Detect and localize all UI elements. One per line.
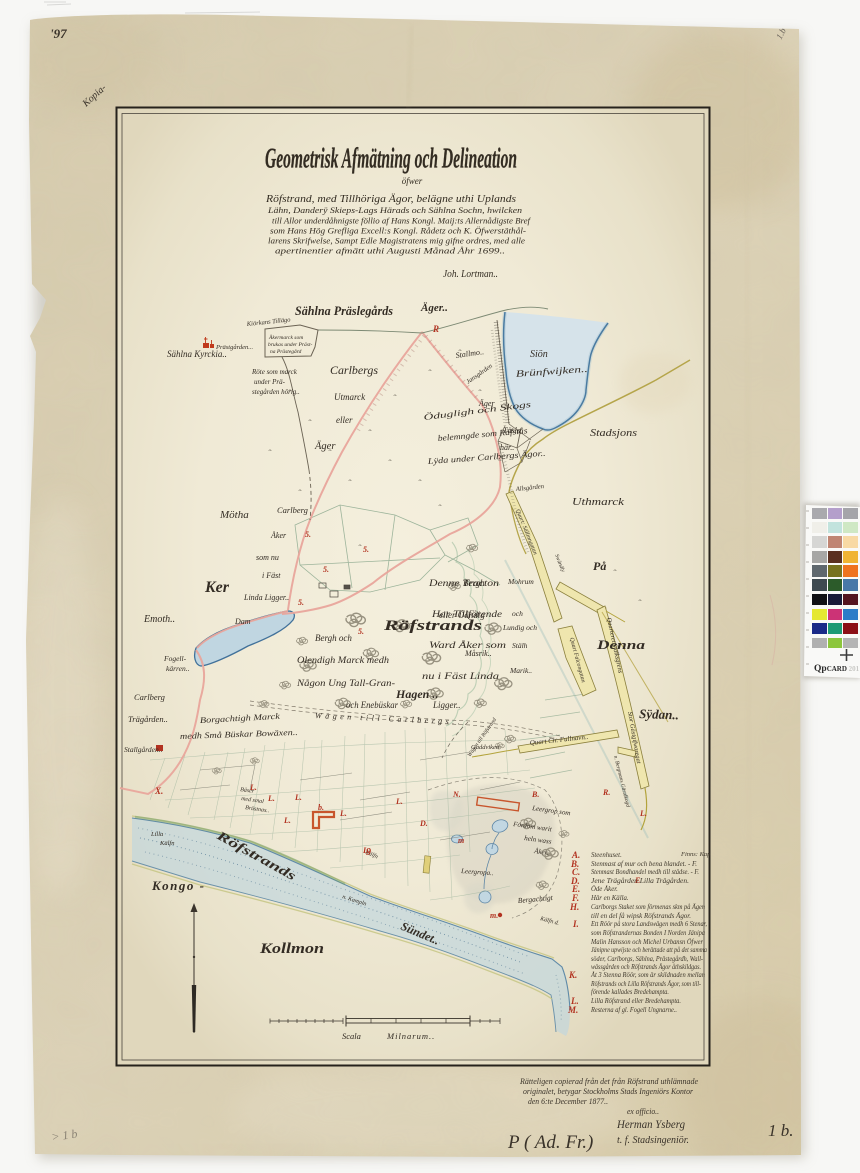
svg-text:R.: R. [602,788,610,797]
svg-text:ex officio..: ex officio.. [627,1107,659,1116]
svg-text:L.: L. [339,809,347,818]
svg-text:Stenmast af mur och bena bland: Stenmast af mur och bena blandet. - F. [591,861,697,868]
svg-text:Scala: Scala [342,1031,361,1041]
svg-text:Carlbergs: Carlbergs [330,365,379,377]
svg-text:Jene Trägården Lilla Trägår: Jene Trägården Lilla Trägården. [591,878,689,885]
svg-text:Fogell-: Fogell- [163,654,187,663]
svg-text:Herman Ysberg: Herman Ysberg [616,1117,685,1131]
svg-text:stegården hörig..: stegården hörig.. [252,388,300,396]
svg-text:Milnarum..: Milnarum.. [386,1031,435,1041]
svg-text:Kälfn: Kälfn [159,840,174,847]
svg-text:Kongo -: Kongo - [151,878,205,893]
svg-text:Äger: Äger [478,399,495,408]
svg-text:Olendigh Marck medh: Olendigh Marck medh [297,655,390,665]
svg-text:R: R [432,324,439,334]
svg-text:till en del få wipsk Röfstrand: till en del få wipsk Röfstrands Ägor. [591,913,691,920]
svg-text:m.: m. [490,911,498,920]
svg-text:Ker: Ker [204,579,230,596]
svg-text:Ett Röör på stora Landswägen m: Ett Röör på stora Landswägen medh 6 Sten… [590,921,707,928]
svg-text:Åkermarck som: Åkermarck som [268,333,303,341]
svg-text:Åt 3 Stenna Röör, som är skild: Åt 3 Stenna Röör, som är skildnaden mell… [590,971,706,979]
svg-text:N.: N. [452,790,461,799]
svg-text:till Allor underdåhnigste föll: till Allor underdåhnigste föllio af Hans… [272,217,532,226]
svg-text:Bergh och: Bergh och [315,633,352,643]
svg-text:Mohrum: Mohrum [507,577,534,586]
svg-text:Uthmarck: Uthmarck [572,497,624,508]
svg-text:Resterna af gl. Fogell Ungnarn: Resterna af gl. Fogell Ungnarne.. [590,1007,677,1014]
svg-text:5.: 5. [305,530,311,539]
svg-text:9: 9 [366,847,371,858]
svg-text:Lundig och: Lundig och [502,623,537,632]
svg-text:Röfstrand, med Tillhöriga Ägor: Röfstrand, med Tillhöriga Ägor, belägne … [265,193,516,205]
svg-text:Röfstrands: Röfstrands [383,618,483,634]
svg-text:brukas under Präst-: brukas under Präst- [268,342,312,348]
svg-text:i Fäst: i Fäst [262,571,281,580]
svg-text:Siön: Siön [530,349,548,360]
svg-text:1 b.: 1 b. [768,1121,794,1140]
svg-text:den 6:te December 1877..: den 6:te December 1877.. [528,1097,608,1106]
svg-text:nu i Fäst Linda: nu i Fäst Linda [422,671,500,681]
svg-text:Trägården..: Trägården.. [128,714,168,724]
svg-text:Äger..: Äger.. [420,301,448,314]
svg-text:söder, Carlborgs, Sählna, Präs: söder, Carlborgs, Sählna, Prästegårdh, W… [591,956,704,963]
svg-text:På: På [593,559,606,573]
svg-text:Ligger..: Ligger.. [432,700,461,710]
svg-text:Lähn, Danderÿ Skieps-Lags Hära: Lähn, Danderÿ Skieps-Lags Härads och Säh… [267,205,522,215]
svg-text:Rätteligen copierad från det f: Rätteligen copierad från det från Röfstr… [519,1077,698,1086]
svg-text:som Röfstrandernas Bonden I No: som Röfstrandernas Bonden I Norden Jänip… [591,930,706,937]
svg-text:Hagen ..: Hagen .. [395,687,438,701]
svg-text:Linda Ligger..: Linda Ligger.. [243,593,289,602]
svg-text:L.: L. [639,809,647,818]
svg-text:eller: eller [336,415,353,425]
svg-text:Mötha: Mötha [219,509,249,521]
svg-text:Här en Källa.: Här en Källa. [590,895,629,902]
svg-text:m: m [458,836,464,845]
svg-text:Carlberg: Carlberg [277,505,308,515]
svg-text:'97: '97 [50,26,67,41]
svg-text:förende kallades Bredehampta.: förende kallades Bredehampta. [591,989,669,996]
svg-text:Stenmast Bondhandel medh till: Stenmast Bondhandel medh till städse. - … [591,869,699,876]
svg-text:L.: L. [283,816,291,825]
svg-text:K.: K. [568,970,577,980]
svg-text:Malin Hansson och Michel Urban: Malin Hansson och Michel Urbansn Öfwer [590,938,703,946]
svg-text:och Enebüskar: och Enebüskar [346,700,398,710]
svg-text:som nu: som nu [256,553,279,562]
svg-text:5.: 5. [323,565,329,574]
svg-text:här..: här.. [500,443,514,452]
svg-text:Denna: Denna [596,637,646,652]
svg-text:Steenhuset.: Steenhuset. [591,852,622,859]
svg-text:Dam: Dam [234,617,251,626]
svg-text:X.: X. [154,786,163,796]
svg-text:L.: L. [267,794,275,803]
svg-text:Emoth..: Emoth.. [143,614,175,625]
svg-text:Måsrik..: Måsrik.. [464,649,492,658]
svg-text:b.: b. [318,803,324,812]
svg-text:Äger: Äger [314,440,336,452]
svg-text:som Hans Hög Grefliga Excell:s: som Hans Hög Grefliga Excell:s Kongl. Rå… [270,227,526,236]
svg-text:Öde Åker.: Öde Åker. [591,885,618,893]
svg-text:Stadsjons: Stadsjons [590,428,637,439]
svg-text:Jänipne upwijste och berättade: Jänipne upwijste och berättade att på de… [591,947,708,954]
svg-text:I.: I. [572,919,579,929]
svg-text:Lilla Röfstrand eller Bredeham: Lilla Röfstrand eller Bredehampta. [590,998,681,1005]
svg-text:Joh. Lortman..: Joh. Lortman.. [443,269,498,280]
svg-text:eller Öändig: eller Öändig [439,610,485,620]
svg-text:Åker: Åker [270,531,287,540]
svg-text:Sählna Präslegårds: Sählna Präslegårds [295,303,393,318]
svg-text:Täsla: Täsla [503,426,521,435]
svg-text:öfwer: öfwer [402,176,423,186]
svg-text:Sÿdan..: Sÿdan.. [639,706,679,722]
svg-text:kärren..: kärren.. [166,664,190,673]
svg-text:L.: L. [294,793,302,802]
svg-text:B.: B. [531,790,539,799]
svg-text:M.: M. [567,1005,578,1015]
svg-text:wässgården och Röfstrands Ägor: wässgården och Röfstrands Ägor åthskildg… [591,964,701,971]
svg-text:apertinentier afmätt uthi Augu: apertinentier afmätt uthi Augusti Månad … [275,247,505,256]
svg-text:originalet, betygar Stockholms: originalet, betygar Stockholms Stads Ing… [523,1087,694,1096]
svg-text:Kollmon: Kollmon [259,941,324,957]
svg-text:5.: 5. [358,627,364,636]
svg-text:och: och [512,609,523,618]
svg-text:Marik..: Marik.. [509,666,532,675]
svg-text:na Prästegård: na Prästegård [270,348,302,355]
svg-text:Geometrisk Afmätning och Delin: Geometrisk Afmätning och Delineation [265,144,517,175]
svg-text:Bergh: Bergh [463,578,485,588]
svg-text:Röte som marck: Röte som marck [251,368,298,376]
svg-text:5.: 5. [363,545,369,554]
svg-text:Carlborgs Staket som förmenas: Carlborgs Staket som förmenas skm på Äge… [591,904,706,911]
svg-text:Lilla: Lilla [150,831,163,838]
svg-text:QpCARD 201: QpCARD 201 [814,664,860,674]
svg-text:P ( Ad. Fr.): P ( Ad. Fr.) [507,1132,593,1153]
svg-text:5.: 5. [298,598,304,607]
svg-text:Utmarck: Utmarck [334,392,366,402]
svg-text:Röfstrands och Lilla Röfstrand: Röfstrands och Lilla Röfstrands Ägor, so… [590,981,702,988]
svg-text:D.: D. [419,819,428,828]
svg-text:L.: L. [249,783,257,792]
svg-text:Någon Ung Tall-Gran-: Någon Ung Tall-Gran- [296,678,395,688]
svg-text:H.: H. [569,902,579,912]
svg-text:Finns: Kap: Finns: Kap [680,851,711,858]
svg-text:Prästgården...: Prästgården... [215,344,254,351]
svg-text:under Prä-: under Prä- [254,378,286,386]
svg-text:Stälh: Stälh [512,641,528,650]
svg-text:Carlberg: Carlberg [134,692,165,702]
svg-text:Stallgården..: Stallgården.. [124,745,163,754]
svg-text:L.: L. [395,797,403,806]
svg-text:t. f. Stadsingeniör.: t. f. Stadsingeniör. [617,1134,689,1146]
svg-text:larens Skrifwelse, Sampt Edle: larens Skrifwelse, Sampt Edle Magistrate… [268,237,526,246]
